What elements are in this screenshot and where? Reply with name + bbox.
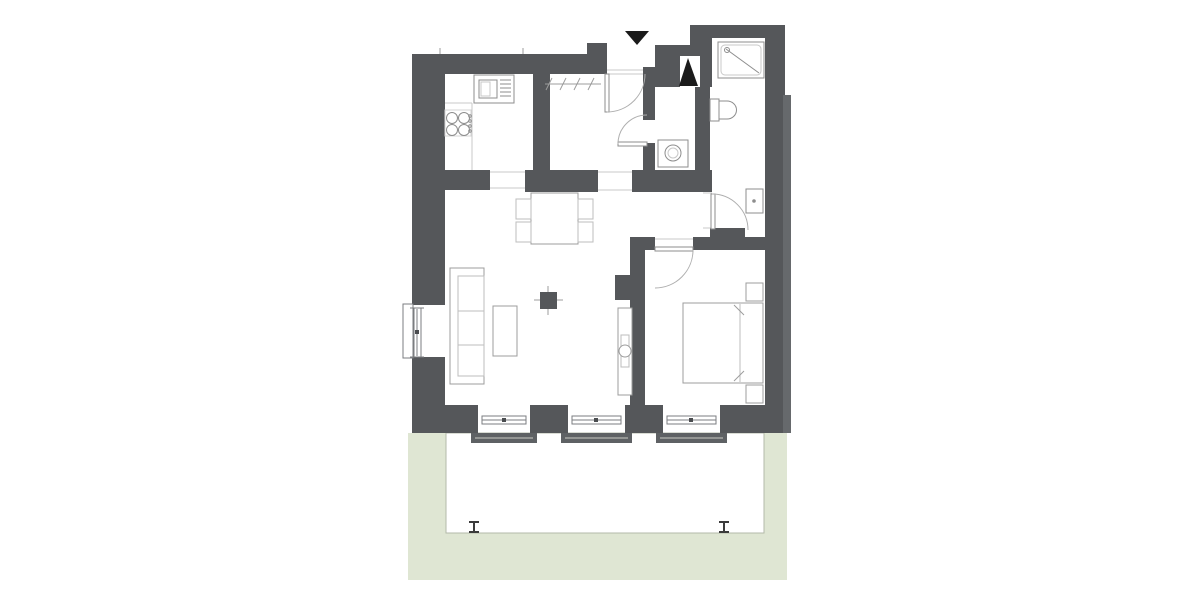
utility-door-arc [618,115,647,144]
window-frame-1-dot [502,418,506,422]
cooktop-knob-1 [469,115,472,118]
dining-table [531,193,578,244]
wall-left-upper [412,54,445,305]
floor-plan-page [0,0,1200,600]
cooktop-knob-2 [469,120,472,123]
column [540,292,557,309]
wall-entrance-jamb-lower [643,143,655,172]
wall-bath-left [695,87,710,172]
floor-plan-svg [0,0,1200,600]
nightstand-top [746,283,763,301]
cooktop-burner-3 [447,125,458,136]
bathroom-layer [710,42,764,213]
toilet-bowl [719,101,737,119]
left-window-outer-sill [403,304,413,358]
dining-chair-4 [578,222,593,242]
bathroom-door-leaf [711,194,715,229]
wall-bottom-pier-1 [530,405,568,433]
cooktop-knob-3 [469,125,472,128]
entry-hall-layer [545,78,601,90]
dining-chair-3 [578,199,593,219]
cooktop-burner-4 [459,125,470,136]
cooktop-burner-1 [447,113,458,124]
bathroom-door-arc [712,194,748,230]
window-frame-3-dot [689,418,693,422]
washing-machine-drum [665,145,681,161]
kitchen-appliance [474,75,514,103]
terrace-area [446,433,764,533]
wall-chimney-block [615,275,645,300]
wall-bedroom-top-left [630,237,655,250]
wall-entry-living [525,170,598,192]
wall-hall-bottom-band [632,170,712,192]
stove-unit-circle [619,345,631,357]
bedroom-layer [683,283,763,403]
garden-layer [408,433,787,580]
window-sill-layer [471,433,727,443]
wall-right-outer-strip [783,95,791,433]
entrance-arrow-icon [625,31,649,45]
utility-layer [658,140,688,167]
kitchen-layer [445,75,514,170]
bedroom-door-leaf [655,247,693,251]
wall-top-bath [690,25,765,38]
wall-left-lower [412,357,445,405]
dining-chair-1 [516,199,531,219]
toilet-tank [710,99,719,121]
dining-chair-2 [516,222,531,242]
washbasin-drain-dot [752,199,756,203]
living-room-layer [450,193,632,395]
sofa-seat [458,276,484,376]
wall-kitchen-entry-divider [533,74,550,170]
cooktop-knob-4 [469,130,472,133]
bedroom-door-arc [655,250,693,288]
wall-entry-raised-block [587,43,607,74]
utility-door-leaf [618,142,647,146]
window-frame-2-dot [594,418,598,422]
wall-right [765,25,785,433]
nightstand-bottom [746,385,763,403]
entrance-door-arc [607,74,645,112]
wall-kitchen-living-stub [445,170,490,190]
wall-bottom-pier-2 [625,405,663,433]
double-bed [683,303,763,383]
wall-bottom-left-block [412,405,478,433]
cooktop-burner-2 [459,113,470,124]
wall-bedroom-top-right [693,237,765,250]
left-window-dot [415,330,419,334]
coffee-table [493,306,517,356]
entrance-door-leaf [605,74,609,112]
